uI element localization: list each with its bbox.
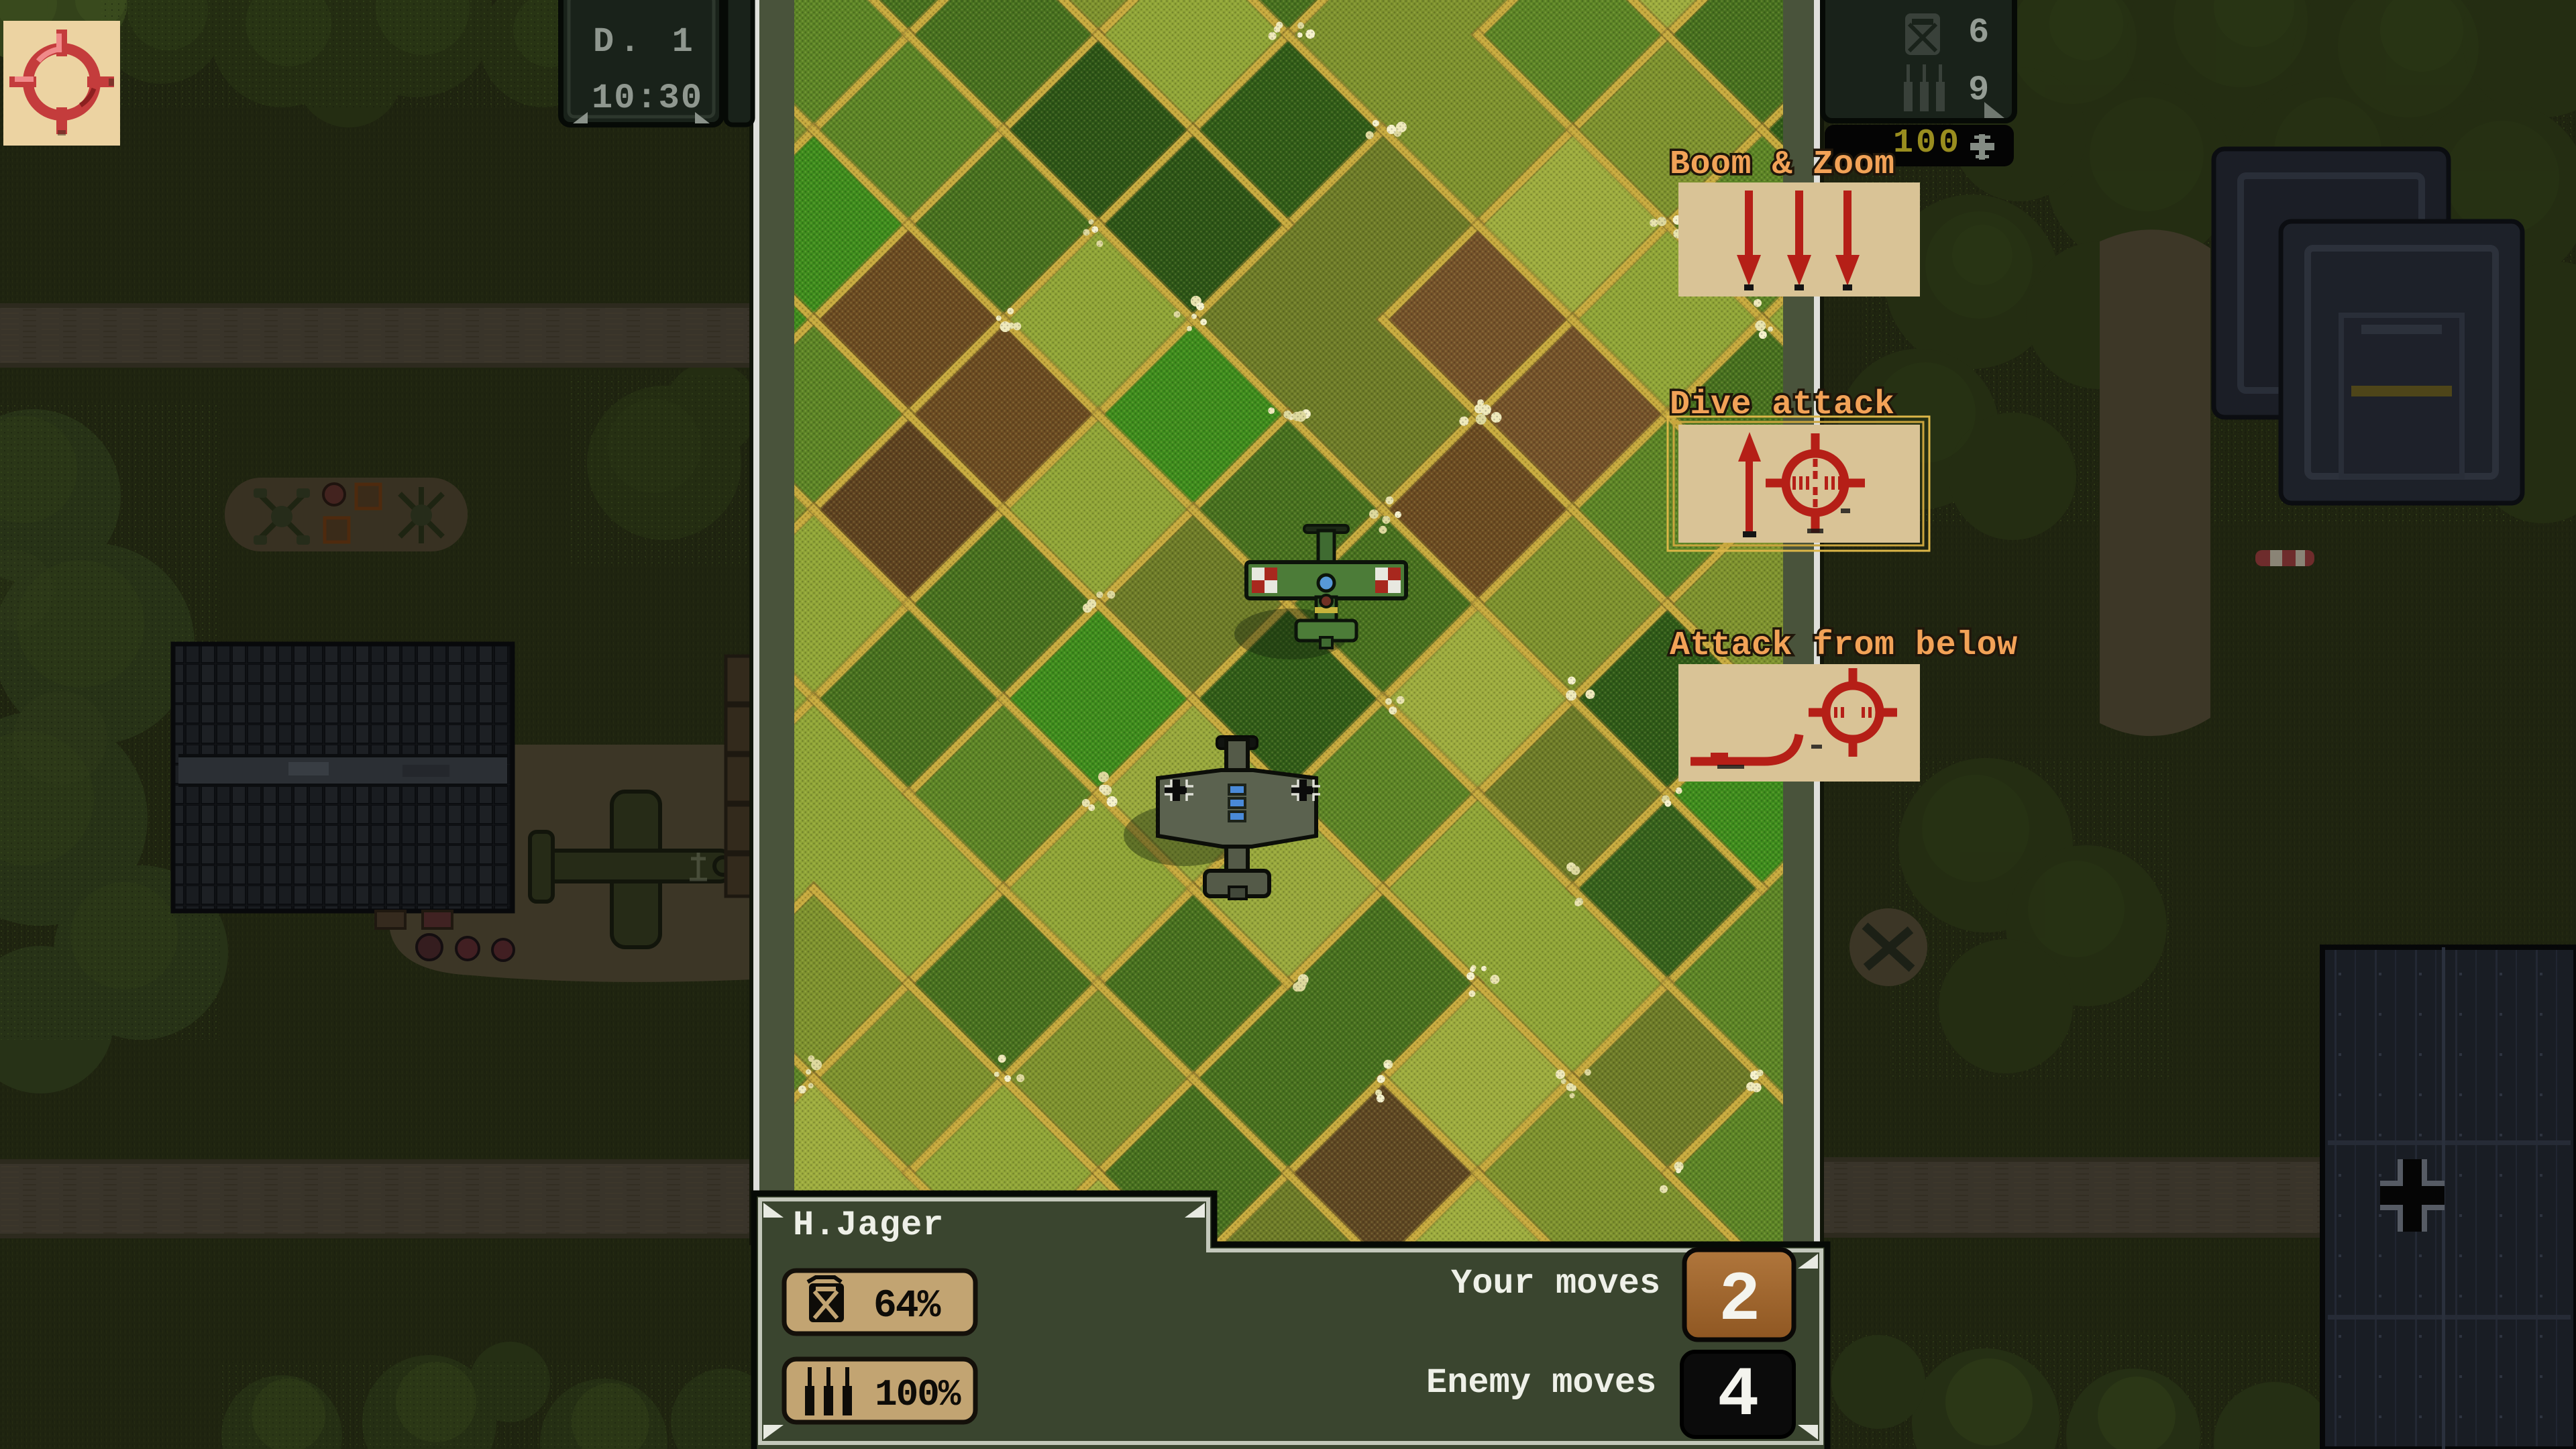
svg-text:Attack from below: Attack from below: [1670, 627, 2018, 665]
svg-text:H.Jager: H.Jager: [793, 1205, 944, 1245]
svg-text:Your moves: Your moves: [1451, 1264, 1660, 1303]
svg-text:100: 100: [1893, 124, 1962, 162]
svg-text:Enemy moves: Enemy moves: [1426, 1363, 1656, 1403]
svg-text:4: 4: [1717, 1356, 1759, 1436]
svg-text:Dive attack: Dive attack: [1670, 386, 1895, 424]
svg-text:9: 9: [1968, 70, 1989, 110]
svg-text:10:30: 10:30: [592, 78, 703, 118]
svg-text:2: 2: [1719, 1261, 1760, 1340]
svg-text:64%: 64%: [873, 1285, 941, 1328]
svg-text:6: 6: [1968, 13, 1989, 52]
svg-text:100%: 100%: [875, 1373, 961, 1416]
svg-text:Boom & Zoom: Boom & Zoom: [1670, 146, 1895, 184]
svg-text:D. 1: D. 1: [593, 22, 698, 62]
